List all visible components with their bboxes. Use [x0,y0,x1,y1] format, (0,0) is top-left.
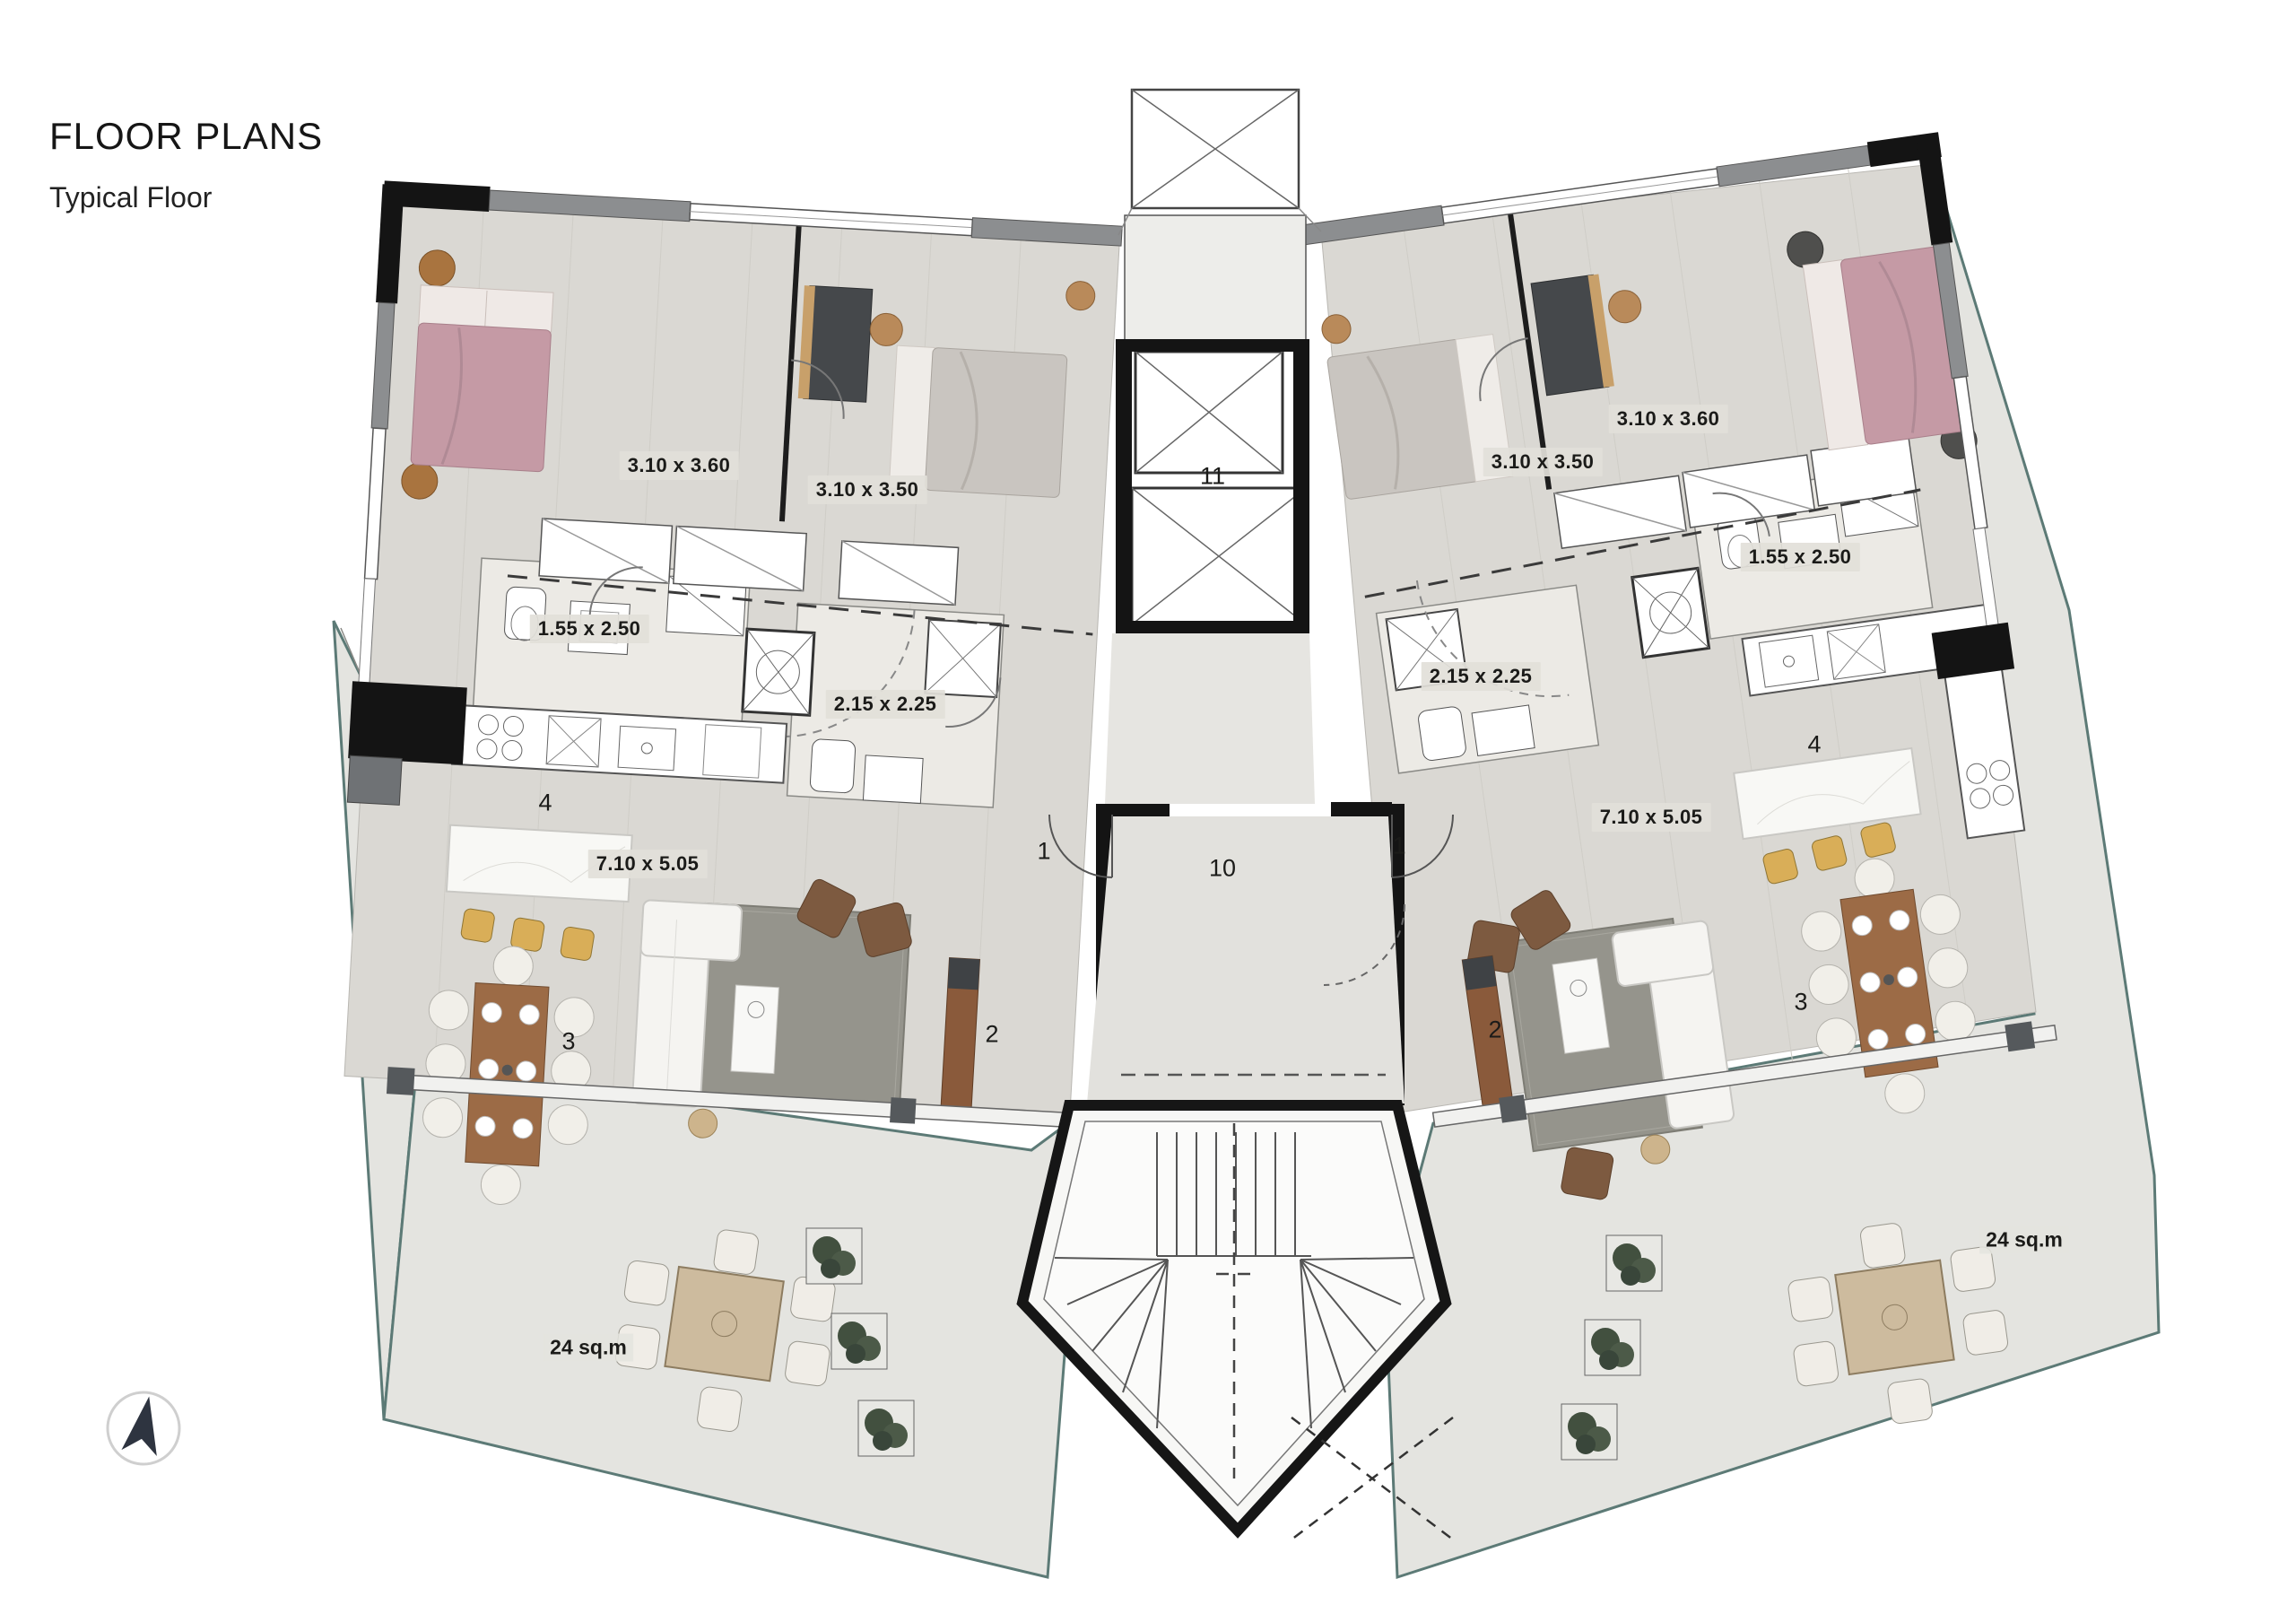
left-bedroom2-dim-label: 3.10 x 3.50 [808,475,927,504]
right-bathroom1-dim-label: 1.55 x 2.50 [1741,543,1860,571]
left-shower [743,629,814,715]
page-subtitle: Typical Floor [49,181,323,214]
right-terrace-area-label: 24 sq.m [1979,1226,2069,1254]
left-bathroom1-dim-label: 1.55 x 2.50 [530,615,649,643]
stairwell [1022,1105,1453,1540]
right-bedroom2-dim-label: 3.10 x 3.50 [1483,448,1603,476]
left-apartment [323,180,1122,1236]
elevator-shaft-1 [1135,352,1283,473]
left-living-number: 2 [985,1021,998,1049]
left-bathroom2-dim-label: 2.15 x 2.25 [826,690,945,719]
left-bedroom1-dim-label: 3.10 x 3.60 [620,451,739,480]
right-shower [1632,568,1709,657]
left-living-dim-label: 7.10 x 5.05 [588,850,708,878]
floor-plan-page: FLOOR PLANS Typical Floor 3.10 x 3.60 3.… [0,0,2296,1605]
right-kitchen-number: 4 [1807,731,1821,759]
right-bathroom2-dim-label: 2.15 x 2.25 [1422,662,1541,691]
right-living-dim-label: 7.10 x 5.05 [1592,803,1711,832]
right-bedroom1-dim-label: 3.10 x 3.60 [1609,405,1728,433]
left-dining-number: 3 [561,1028,575,1056]
right-dining-number: 3 [1794,989,1807,1016]
left-entrance-number: 1 [1037,838,1050,866]
core-lobby-number: 10 [1209,855,1236,883]
right-entrance-number: 1 [1392,833,1405,860]
left-terrace-area-label: 24 sq.m [544,1334,633,1362]
floor-plan-drawing [0,0,2296,1605]
page-header: FLOOR PLANS Typical Floor [49,115,323,214]
left-kitchen-number: 4 [538,789,552,817]
right-living-number: 2 [1488,1016,1501,1044]
elevator-shaft-2 [1132,488,1306,624]
page-title: FLOOR PLANS [49,115,323,158]
north-arrow-icon [102,1387,186,1470]
core-elevator-number: 11 [1200,463,1225,491]
core-corridor [1105,633,1315,804]
elevator-shaft-top [1132,90,1299,208]
